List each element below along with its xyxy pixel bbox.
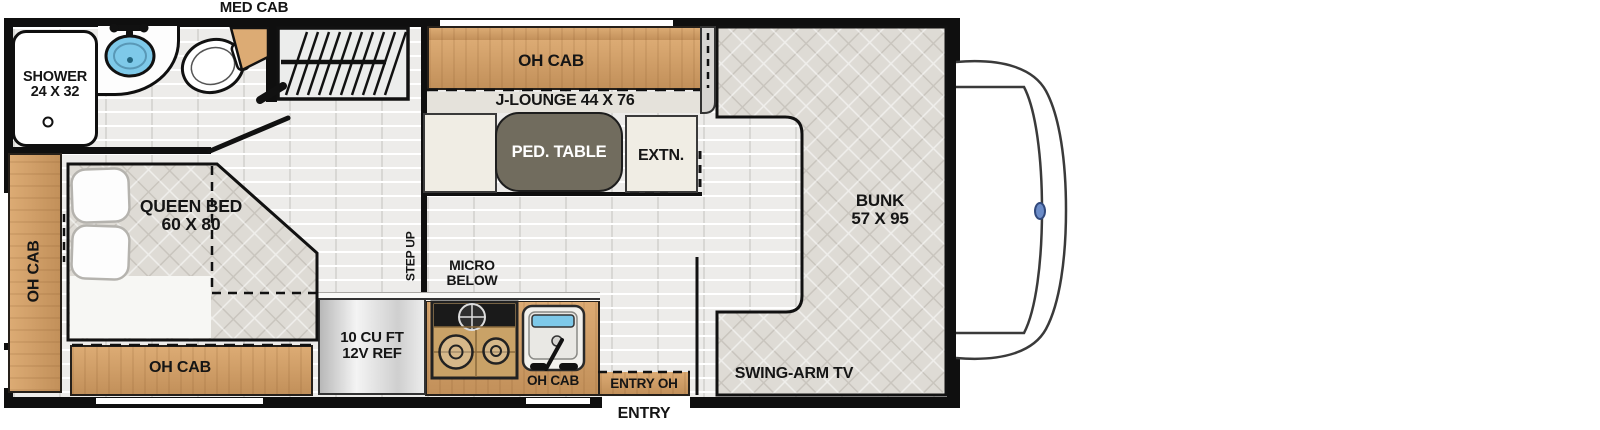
extn-label: EXTN. bbox=[622, 148, 700, 165]
queen-bed-label: QUEEN BED 60 X 80 bbox=[116, 197, 266, 234]
brand-emblem bbox=[1035, 203, 1045, 219]
bathroom-sink bbox=[106, 24, 154, 77]
lounge-oh-cab-label: OH CAB bbox=[470, 52, 632, 70]
cab-front bbox=[956, 61, 1066, 359]
entry-label: ENTRY bbox=[596, 406, 692, 423]
bottom-oh-cab-label: OH CAB bbox=[115, 360, 245, 377]
rv-floorplan: MED CAB SHOWER 24 X 32 OH CAB J-LOUNGE 4… bbox=[0, 0, 1600, 430]
kitchen-sink bbox=[523, 306, 584, 370]
cooktop bbox=[432, 302, 517, 378]
med-cab-label: MED CAB bbox=[204, 0, 304, 16]
side-oh-cab-label: OH CAB bbox=[27, 211, 44, 331]
sink-oh-cab-label: OH CAB bbox=[516, 374, 590, 388]
bunk-label: BUNK 57 X 95 bbox=[810, 192, 950, 228]
wardrobe bbox=[278, 28, 408, 99]
entry-oh-label: ENTRY OH bbox=[598, 377, 690, 391]
shower-drain bbox=[44, 118, 53, 127]
shower-label: SHOWER 24 X 32 bbox=[13, 70, 97, 100]
step-up-label: STEP UP bbox=[405, 221, 418, 291]
ped-table-label: PED. TABLE bbox=[500, 144, 618, 161]
j-lounge-label: J-LOUNGE 44 X 76 bbox=[430, 93, 700, 110]
refrigerator-label: 10 CU FT 12V REF bbox=[320, 330, 424, 362]
micro-below-label: MICRO BELOW bbox=[436, 258, 508, 287]
queen-bed bbox=[68, 164, 317, 340]
swing-arm-tv-label: SWING-ARM TV bbox=[708, 366, 880, 383]
bathroom-door-swing bbox=[210, 118, 288, 151]
